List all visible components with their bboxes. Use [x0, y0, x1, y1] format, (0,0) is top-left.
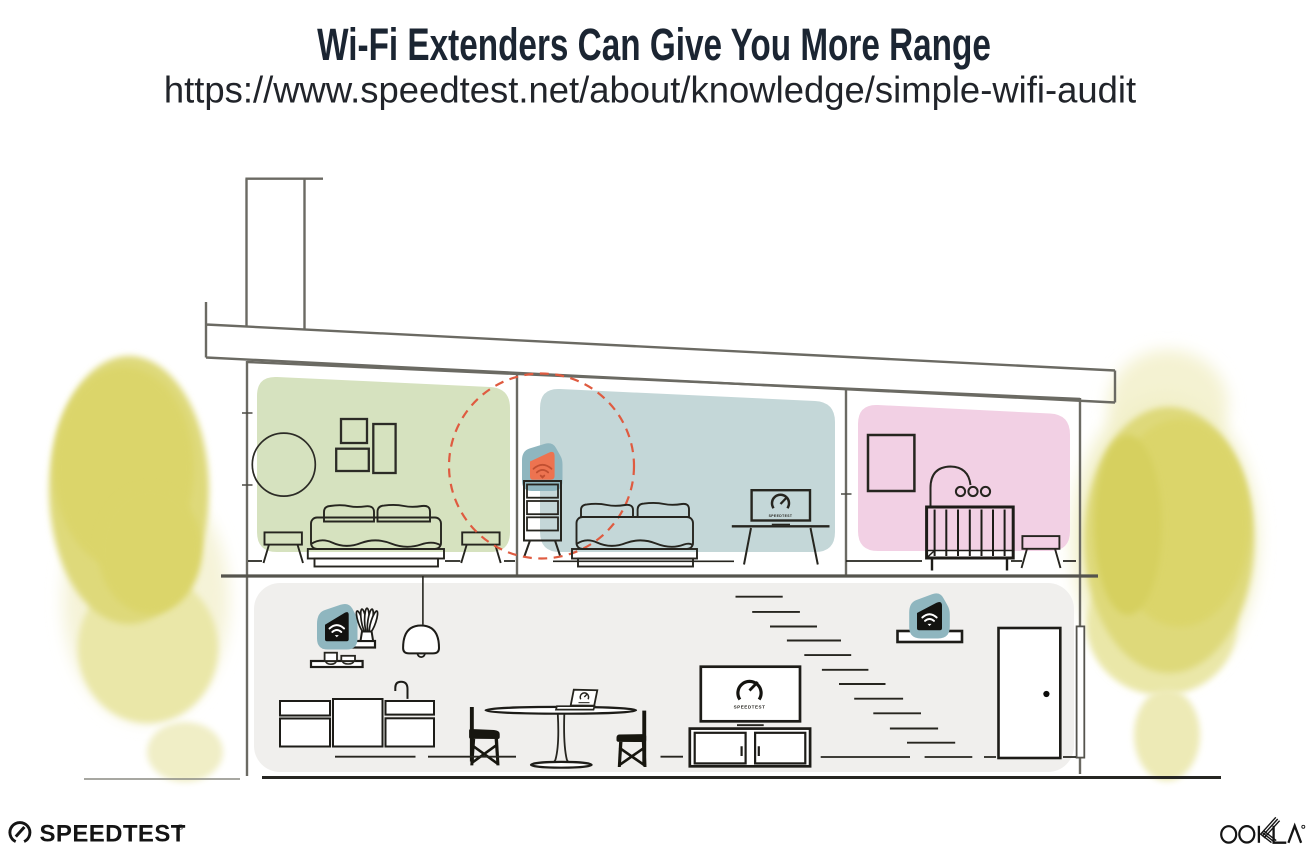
- svg-text:SPEEDTEST: SPEEDTEST: [40, 821, 186, 848]
- svg-text:SPEEDTEST: SPEEDTEST: [769, 514, 793, 518]
- svg-text:®: ®: [178, 823, 184, 832]
- svg-text:Wi-Fi Extenders Can Give You M: Wi-Fi Extenders Can Give You More Range: [317, 20, 991, 70]
- svg-text:SPEEDTEST: SPEEDTEST: [734, 705, 766, 710]
- svg-text:https://www.speedtest.net/abou: https://www.speedtest.net/about/knowledg…: [164, 69, 1136, 110]
